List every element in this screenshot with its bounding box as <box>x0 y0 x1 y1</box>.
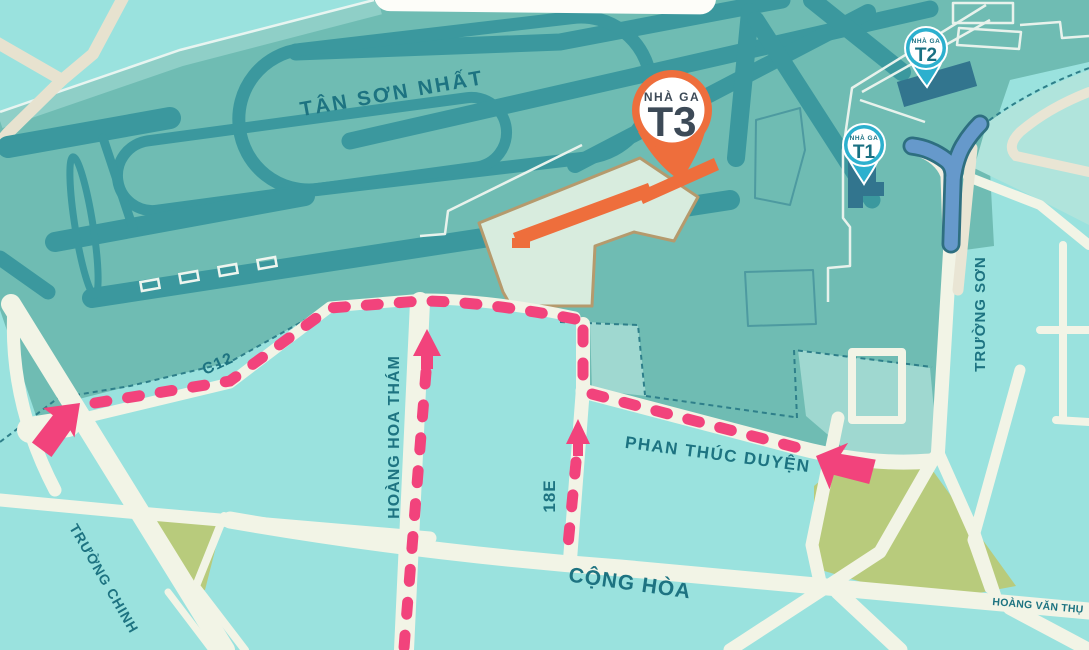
svg-text:HOÀNG HOA THÁM: HOÀNG HOA THÁM <box>384 355 403 519</box>
svg-text:T3: T3 <box>647 98 696 145</box>
svg-text:18E: 18E <box>540 479 559 512</box>
svg-text:TRƯỜNG SƠN: TRƯỜNG SƠN <box>971 256 989 372</box>
svg-text:NHÀ GA: NHÀ GA <box>850 133 879 142</box>
svg-text:NHÀ GA: NHÀ GA <box>912 36 941 45</box>
svg-text:T2: T2 <box>915 45 937 66</box>
svg-text:T1: T1 <box>853 142 876 163</box>
